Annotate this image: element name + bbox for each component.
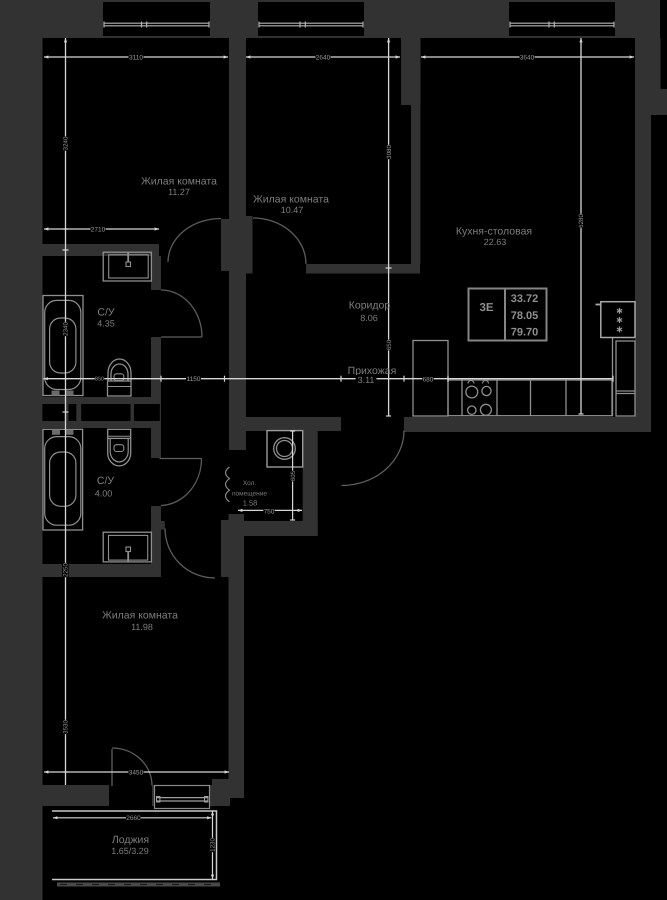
- svg-text:Жилая комната: Жилая комната: [253, 193, 329, 205]
- svg-text:3Е: 3Е: [479, 302, 493, 314]
- svg-text:650: 650: [386, 339, 393, 350]
- svg-text:3640: 3640: [520, 54, 535, 61]
- svg-text:79.70: 79.70: [511, 326, 539, 338]
- svg-text:3530: 3530: [63, 720, 70, 734]
- svg-text:2250: 2250: [63, 563, 70, 577]
- svg-text:Жилая комната: Жилая комната: [141, 175, 217, 187]
- svg-text:605: 605: [290, 470, 297, 481]
- svg-text:помещение: помещение: [232, 490, 267, 497]
- svg-text:С/У: С/У: [97, 475, 115, 487]
- svg-text:8.06: 8.06: [360, 313, 378, 323]
- svg-text:Коридор: Коридор: [349, 299, 391, 311]
- svg-text:680: 680: [423, 376, 434, 383]
- svg-text:Кухня-столовая: Кухня-столовая: [456, 225, 532, 237]
- svg-text:11.27: 11.27: [168, 187, 190, 197]
- svg-text:2340: 2340: [63, 322, 70, 336]
- svg-text:3110: 3110: [129, 54, 143, 61]
- svg-text:2660: 2660: [126, 815, 141, 822]
- svg-text:750: 750: [264, 508, 275, 515]
- svg-text:1.58: 1.58: [243, 499, 258, 508]
- svg-text:78.05: 78.05: [511, 310, 539, 322]
- svg-text:2710: 2710: [91, 226, 106, 233]
- svg-text:33.72: 33.72: [511, 293, 539, 305]
- svg-text:850: 850: [95, 377, 104, 383]
- svg-text:4.35: 4.35: [97, 319, 115, 329]
- svg-text:Хол.: Хол.: [243, 480, 257, 487]
- svg-text:Жилая комната: Жилая комната: [102, 609, 178, 621]
- svg-text:3.11: 3.11: [358, 375, 375, 385]
- svg-text:С/У: С/У: [97, 306, 115, 318]
- svg-text:Лоджия: Лоджия: [112, 834, 149, 846]
- svg-text:1150: 1150: [187, 376, 201, 383]
- svg-text:22.63: 22.63: [484, 237, 507, 247]
- svg-text:2640: 2640: [316, 54, 331, 61]
- svg-text:6280: 6280: [578, 214, 585, 228]
- svg-text:3240: 3240: [63, 136, 70, 150]
- svg-text:3080: 3080: [386, 145, 393, 159]
- svg-text:4.00: 4.00: [95, 489, 113, 499]
- svg-text:1230: 1230: [210, 838, 217, 852]
- svg-text:10.47: 10.47: [281, 205, 304, 215]
- svg-text:11.98: 11.98: [131, 622, 153, 632]
- svg-text:3450: 3450: [129, 769, 144, 776]
- svg-text:1.65/3.29: 1.65/3.29: [111, 846, 149, 856]
